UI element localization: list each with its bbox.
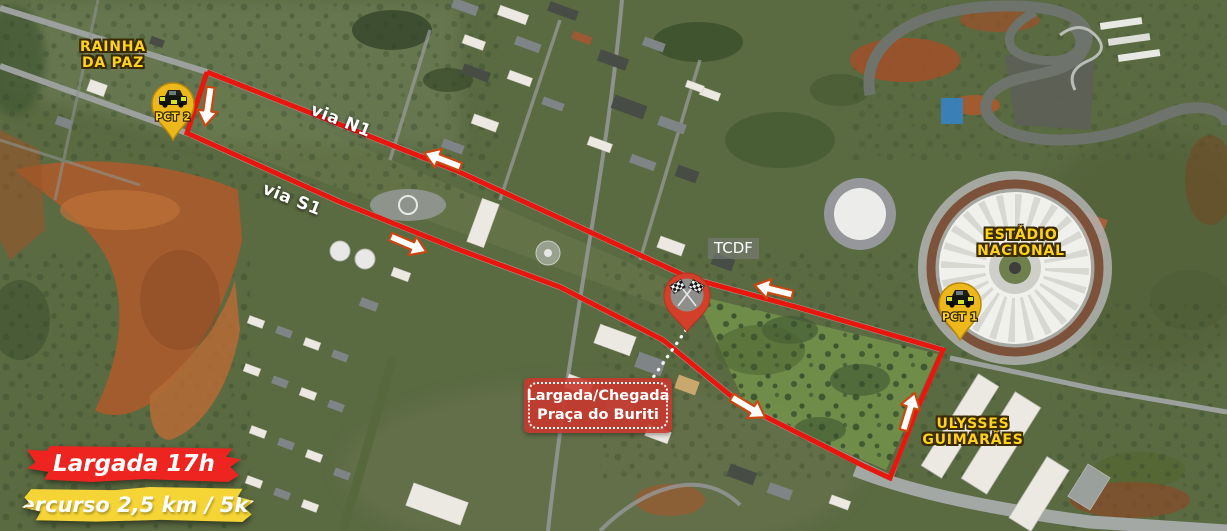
gymnasium-dome: [824, 178, 896, 250]
label-rainha-line2: DA PAZ: [57, 56, 169, 72]
banner-distance: Percurso 2,5 km / 5km: [22, 487, 254, 522]
banner-start-time: Largada 17h: [27, 446, 241, 482]
label-rainha-line1: RAINHA: [57, 40, 169, 56]
label-estadio-nacional: ESTÁDIO NACIONAL: [952, 228, 1090, 259]
round-plaza: [536, 241, 560, 265]
label-estadio-line1: ESTÁDIO: [952, 228, 1090, 244]
label-ulysses-line2: GUIMARÃES: [900, 433, 1046, 449]
national-stadium: [918, 171, 1112, 365]
start-finish-line1: Largada/Chegada: [527, 387, 670, 406]
start-finish-callout: Largada/Chegada Praça do Buriti: [524, 378, 672, 433]
race-route-map: PCT 2 PCT 1 RAINHA DA PAZ via N1 via S1 …: [0, 0, 1227, 531]
checkpoint-2-label: PCT 2: [155, 112, 191, 124]
banner-distance-text: Percurso 2,5 km / 5km: [6, 493, 271, 517]
label-tcdf: TCDF: [708, 238, 759, 259]
checkpoint-1-label: PCT 1: [942, 312, 978, 324]
label-rainha-da-paz: RAINHA DA PAZ: [57, 40, 169, 71]
label-ulysses-line1: ULYSSES: [900, 417, 1046, 433]
label-ulysses-guimaraes: ULYSSES GUIMARÃES: [900, 417, 1046, 448]
start-finish-line2: Praça do Buriti: [537, 406, 659, 425]
banner-start-time-text: Largada 17h: [53, 451, 215, 477]
label-estadio-line2: NACIONAL: [952, 244, 1090, 260]
